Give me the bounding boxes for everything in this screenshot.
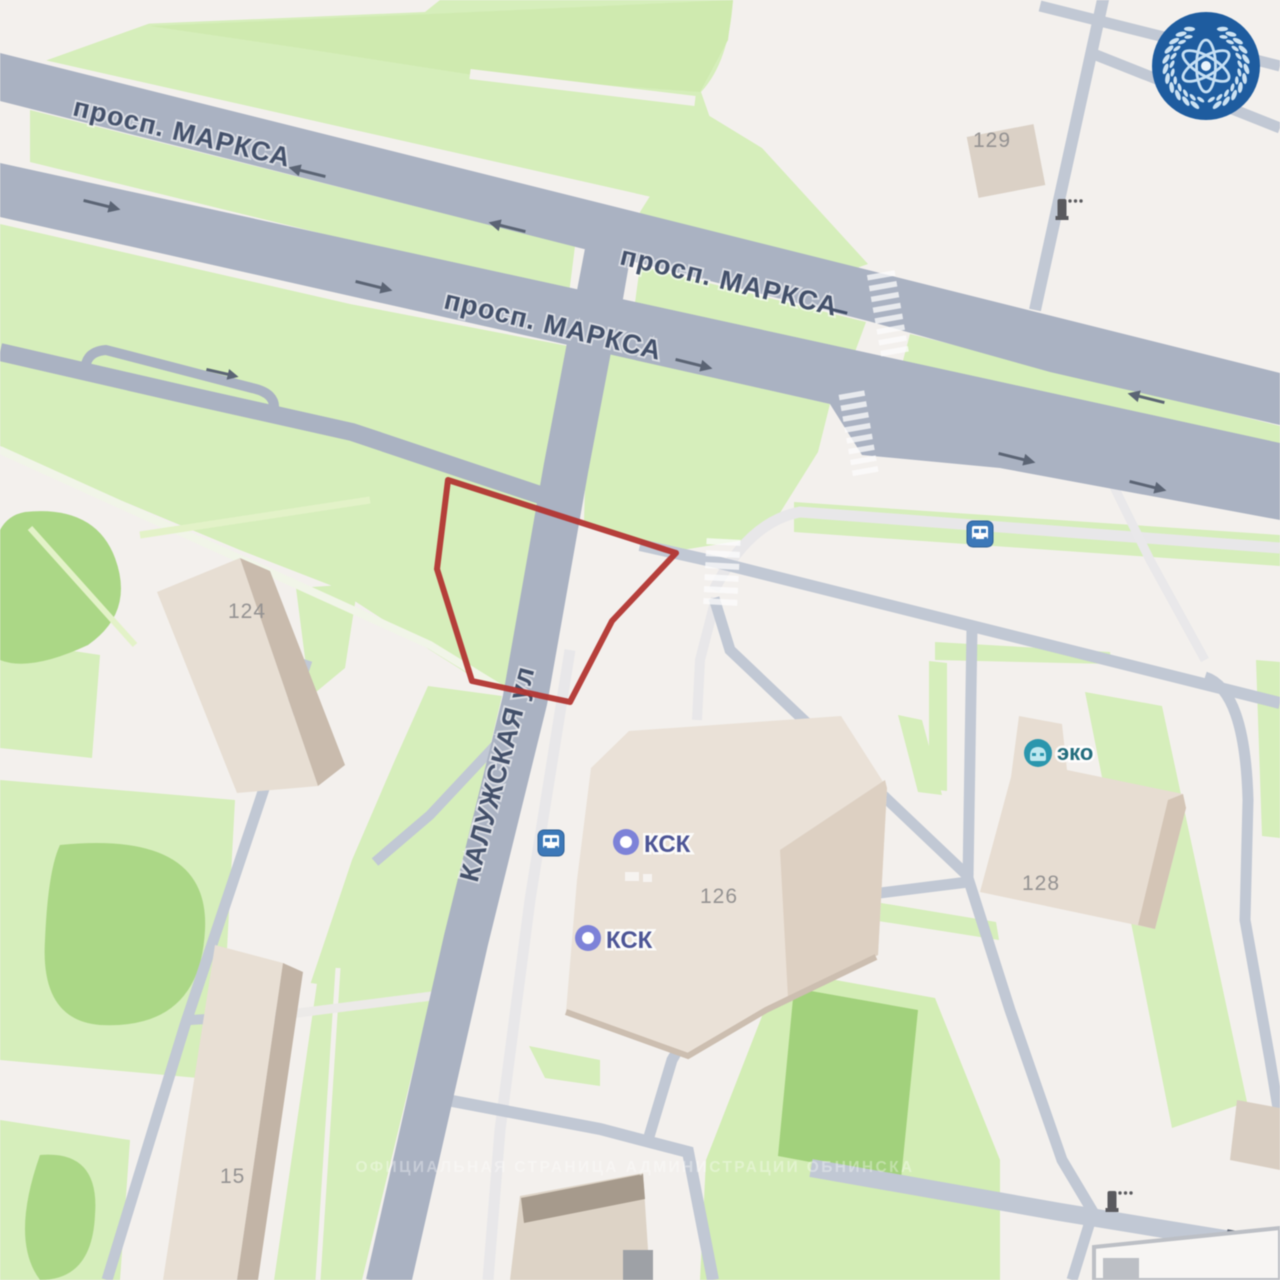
svg-text:КСК: КСК — [606, 927, 653, 954]
svg-text:ОФИЦИАЛЬНАЯ СТРАНИЦА АДМИНИСТР: ОФИЦИАЛЬНАЯ СТРАНИЦА АДМИНИСТРАЦИИ ОБНИН… — [355, 1159, 914, 1176]
svg-text:128: 128 — [1022, 872, 1060, 895]
svg-text:124: 124 — [228, 600, 266, 623]
svg-text:15: 15 — [220, 1165, 245, 1188]
svg-text:КСК: КСК — [644, 831, 691, 858]
svg-text:126: 126 — [700, 885, 738, 908]
svg-text:эко: эко — [1057, 740, 1093, 765]
svg-text:129: 129 — [973, 129, 1011, 152]
